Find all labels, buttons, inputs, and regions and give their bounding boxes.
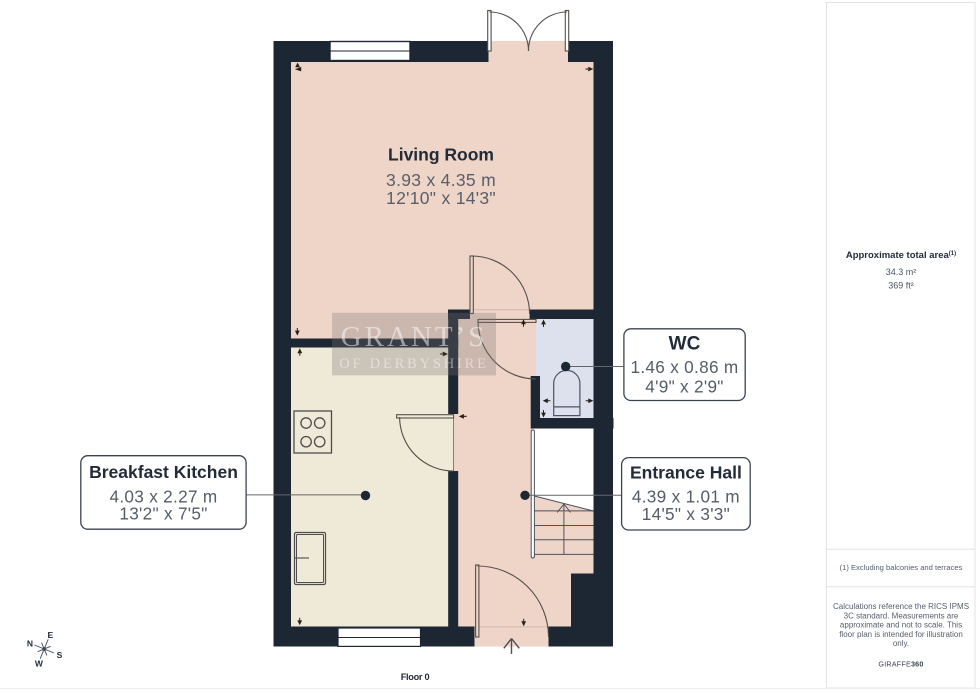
- svg-text:WC: WC: [669, 334, 701, 355]
- svg-text:Living Room: Living Room: [388, 145, 494, 165]
- svg-text:12'10" x 14'3": 12'10" x 14'3": [386, 188, 496, 208]
- svg-text:14'5" x 3'3": 14'5" x 3'3": [642, 504, 730, 524]
- svg-text:approximate and not to scale.: approximate and not to scale. This: [840, 621, 962, 630]
- svg-text:floor plan is intended for ill: floor plan is intended for illustration: [839, 630, 963, 639]
- svg-text:Floor 0: Floor 0: [401, 672, 430, 682]
- svg-text:1.46 x 0.86 m: 1.46 x 0.86 m: [630, 357, 738, 377]
- svg-text:Approximate total area(1): Approximate total area(1): [846, 250, 956, 261]
- svg-text:N: N: [27, 638, 33, 648]
- svg-text:4'9" x 2'9": 4'9" x 2'9": [645, 377, 723, 397]
- svg-text:Entrance Hall: Entrance Hall: [630, 462, 742, 482]
- svg-text:W: W: [35, 658, 44, 668]
- svg-text:E: E: [47, 630, 53, 640]
- svg-text:34.3 m²: 34.3 m²: [886, 267, 917, 277]
- svg-text:13'2" x 7'5": 13'2" x 7'5": [119, 504, 207, 524]
- svg-text:Calculations reference the RIC: Calculations reference the RICS IPMS: [833, 602, 969, 611]
- svg-text:GIRAFFE360: GIRAFFE360: [878, 660, 923, 669]
- svg-text:GRANT’S: GRANT’S: [341, 321, 488, 353]
- svg-text:3C standard. Measurements are: 3C standard. Measurements are: [844, 611, 959, 620]
- svg-text:OF DERBYSHIRE: OF DERBYSHIRE: [339, 356, 489, 372]
- svg-text:S: S: [57, 650, 63, 660]
- svg-text:369 ft²: 369 ft²: [888, 281, 914, 291]
- svg-text:Breakfast Kitchen: Breakfast Kitchen: [89, 462, 238, 482]
- svg-text:(1) Excluding balconies and te: (1) Excluding balconies and terraces: [840, 563, 963, 572]
- svg-text:only.: only.: [893, 639, 909, 648]
- svg-text:3.93 x 4.35 m: 3.93 x 4.35 m: [386, 170, 496, 190]
